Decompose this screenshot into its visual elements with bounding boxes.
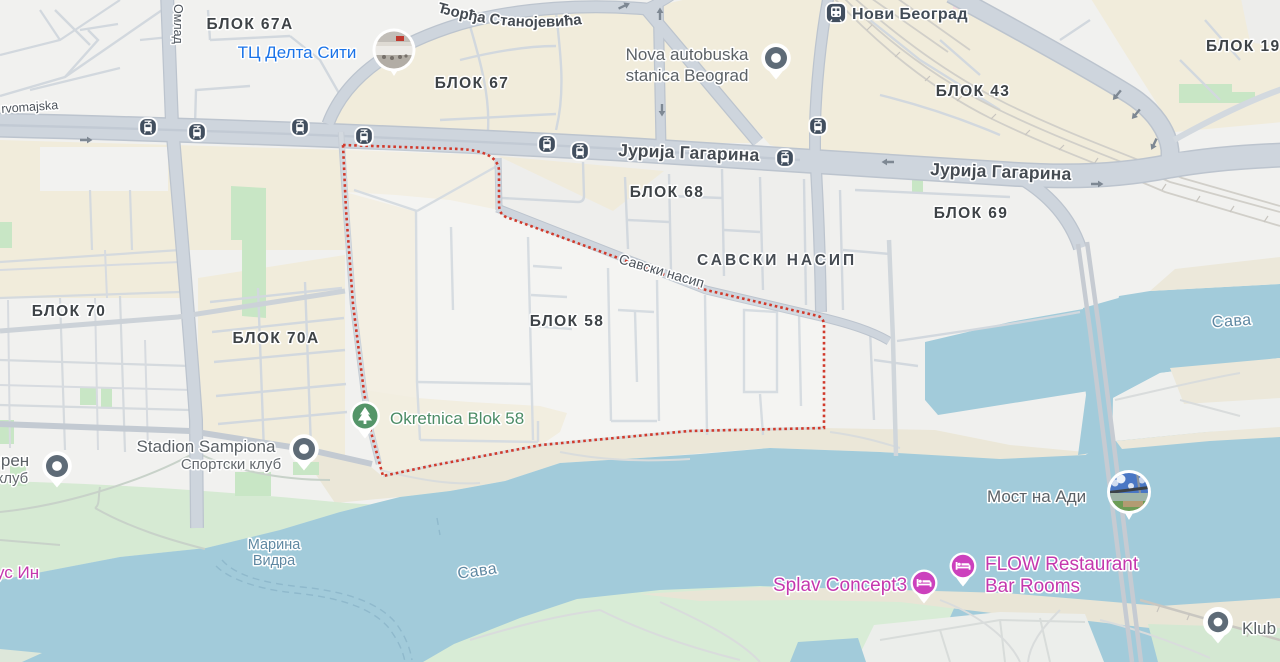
svg-text:БЛОК 43: БЛОК 43 bbox=[936, 83, 1011, 100]
svg-text:Омлад: Омлад bbox=[171, 4, 185, 45]
svg-text:ус Ин: ус Ин bbox=[0, 563, 39, 582]
svg-text:Сава: Сава bbox=[1211, 312, 1252, 332]
svg-text:FLOW Restaurant: FLOW Restaurant bbox=[985, 554, 1139, 575]
svg-text:БЛОК 70А: БЛОК 70А bbox=[232, 330, 319, 347]
svg-text:БЛОК 69: БЛОК 69 bbox=[934, 205, 1009, 222]
svg-text:Nova autobuska: Nova autobuska bbox=[626, 45, 749, 64]
svg-text:Klub: Klub bbox=[1242, 619, 1276, 638]
svg-text:stanica Beograd: stanica Beograd bbox=[626, 66, 749, 85]
svg-text:Okretnica Blok 58: Okretnica Blok 58 bbox=[390, 409, 524, 428]
svg-text:а клуб: а клуб bbox=[0, 470, 28, 487]
svg-text:Stadion Sampiona: Stadion Sampiona bbox=[137, 437, 276, 456]
svg-text:БЛОК 58: БЛОК 58 bbox=[530, 313, 605, 330]
svg-text:БЛОК 68: БЛОК 68 bbox=[630, 184, 705, 201]
svg-text:БЛОК 67А: БЛОК 67А bbox=[206, 16, 293, 33]
svg-text:Bar Rooms: Bar Rooms bbox=[985, 576, 1080, 597]
svg-text:БЛОК 70: БЛОК 70 bbox=[32, 303, 107, 320]
svg-text:САВСКИ НАСИП: САВСКИ НАСИП bbox=[697, 252, 857, 269]
svg-text:Мост на Ади: Мост на Ади bbox=[987, 487, 1086, 506]
svg-text:Видра: Видра bbox=[253, 553, 296, 569]
svg-text:Спортски клуб: Спортски клуб bbox=[181, 456, 281, 473]
svg-text:БЛОК 19: БЛОК 19 bbox=[1206, 38, 1280, 55]
svg-text:Splav Concept3: Splav Concept3 bbox=[773, 575, 907, 596]
svg-text:БЛОК 67: БЛОК 67 bbox=[435, 75, 510, 92]
svg-text:Нови Београд: Нови Београд bbox=[852, 6, 968, 23]
svg-text:Терен: Терен bbox=[0, 451, 29, 470]
svg-text:ТЦ Делта Сити: ТЦ Делта Сити bbox=[238, 43, 357, 62]
svg-text:Марина: Марина bbox=[248, 537, 301, 553]
